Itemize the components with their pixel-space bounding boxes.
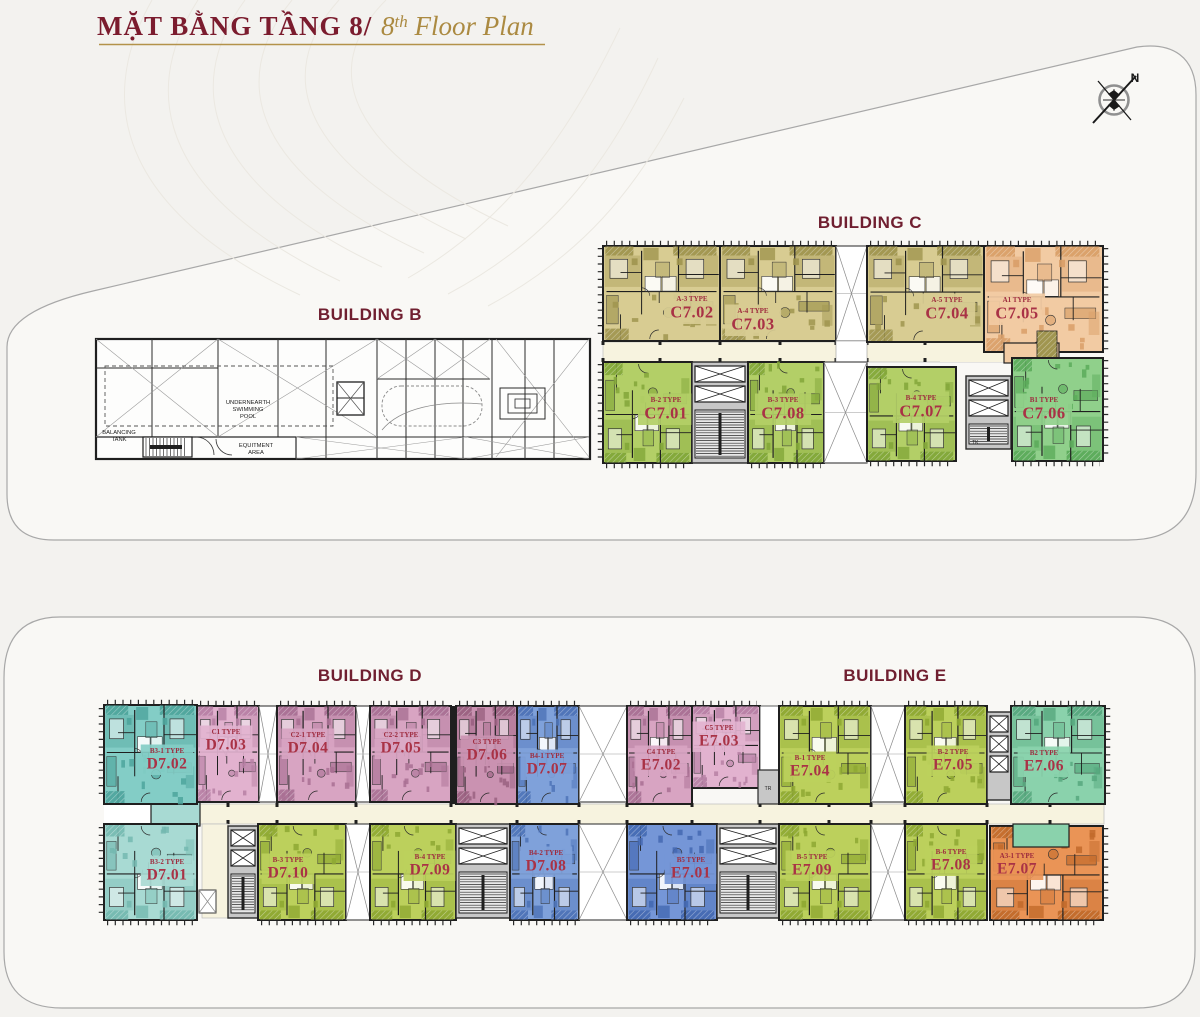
svg-text:MẶT BẰNG TẦNG 8/: MẶT BẰNG TẦNG 8/ bbox=[97, 10, 372, 41]
svg-text:D7.04: D7.04 bbox=[288, 740, 329, 757]
svg-text:E7.07: E7.07 bbox=[997, 861, 1037, 878]
svg-text:C7.08: C7.08 bbox=[761, 404, 804, 423]
svg-text:TR: TR bbox=[765, 786, 772, 792]
svg-text:C1 TYPE: C1 TYPE bbox=[212, 728, 241, 736]
svg-text:B5 TYPE: B5 TYPE bbox=[677, 856, 706, 864]
svg-text:C7.06: C7.06 bbox=[1022, 404, 1065, 423]
svg-text:D7.01: D7.01 bbox=[147, 867, 188, 884]
svg-text:UNDERNEARTH: UNDERNEARTH bbox=[226, 400, 270, 406]
svg-text:C7.03: C7.03 bbox=[731, 315, 774, 334]
svg-text:TANK: TANK bbox=[111, 437, 126, 443]
svg-text:BALANCING: BALANCING bbox=[102, 430, 136, 436]
svg-text:D7.03: D7.03 bbox=[206, 737, 247, 754]
svg-text:B3-1 TYPE: B3-1 TYPE bbox=[150, 747, 185, 755]
svg-text:B2 TYPE: B2 TYPE bbox=[1030, 749, 1059, 757]
svg-text:C7.01: C7.01 bbox=[644, 404, 687, 423]
svg-text:D7.09: D7.09 bbox=[410, 862, 451, 879]
svg-text:E7.06: E7.06 bbox=[1024, 758, 1064, 775]
svg-text:E7.08: E7.08 bbox=[931, 857, 971, 874]
svg-text:EQUITMENT: EQUITMENT bbox=[239, 443, 274, 449]
svg-text:C5 TYPE: C5 TYPE bbox=[705, 724, 734, 732]
svg-text:SWIMMING: SWIMMING bbox=[233, 407, 264, 413]
svg-text:B-1 TYPE: B-1 TYPE bbox=[795, 754, 826, 762]
svg-text:C3 TYPE: C3 TYPE bbox=[473, 738, 502, 746]
svg-text:E7.04: E7.04 bbox=[790, 763, 830, 780]
svg-text:TK.: TK. bbox=[972, 440, 980, 446]
svg-text:BUILDING E: BUILDING E bbox=[843, 666, 946, 685]
svg-text:A3-1 TYPE: A3-1 TYPE bbox=[1000, 852, 1035, 860]
svg-text:D7.08: D7.08 bbox=[526, 858, 567, 875]
svg-text:D7.02: D7.02 bbox=[147, 756, 188, 773]
svg-text:B3-2 TYPE: B3-2 TYPE bbox=[150, 858, 185, 866]
svg-text:D7.07: D7.07 bbox=[527, 761, 568, 778]
svg-text:E7.01: E7.01 bbox=[671, 865, 711, 882]
svg-text:C7.02: C7.02 bbox=[670, 303, 713, 322]
svg-text:AREA: AREA bbox=[248, 450, 264, 456]
svg-text:C7.05: C7.05 bbox=[995, 304, 1038, 323]
svg-text:C7.04: C7.04 bbox=[925, 304, 968, 323]
svg-text:C2-2 TYPE: C2-2 TYPE bbox=[384, 731, 419, 739]
svg-text:N: N bbox=[1131, 71, 1140, 85]
svg-text:BUILDING B: BUILDING B bbox=[318, 305, 422, 324]
svg-text:B4-1 TYPE: B4-1 TYPE bbox=[530, 752, 565, 760]
svg-text:B-5 TYPE: B-5 TYPE bbox=[797, 853, 828, 861]
svg-text:POOL: POOL bbox=[240, 414, 257, 420]
svg-text:B-4 TYPE: B-4 TYPE bbox=[415, 853, 446, 861]
svg-text:E7.03: E7.03 bbox=[699, 733, 739, 750]
svg-text:BUILDING D: BUILDING D bbox=[318, 666, 422, 685]
svg-text:D7.05: D7.05 bbox=[381, 740, 422, 757]
svg-text:B4-2 TYPE: B4-2 TYPE bbox=[529, 849, 564, 857]
svg-text:E7.09: E7.09 bbox=[792, 862, 832, 879]
svg-text:B-6 TYPE: B-6 TYPE bbox=[936, 848, 967, 856]
svg-text:B-3 TYPE: B-3 TYPE bbox=[273, 856, 304, 864]
svg-text:C4 TYPE: C4 TYPE bbox=[647, 748, 676, 756]
svg-text:D7.10: D7.10 bbox=[268, 865, 309, 882]
svg-text:E7.05: E7.05 bbox=[933, 757, 973, 774]
svg-text:C2-1 TYPE: C2-1 TYPE bbox=[291, 731, 326, 739]
svg-text:BUILDING C: BUILDING C bbox=[818, 213, 922, 232]
svg-text:C7.07: C7.07 bbox=[899, 402, 942, 421]
svg-text:D7.06: D7.06 bbox=[467, 747, 508, 764]
svg-text:B-2 TYPE: B-2 TYPE bbox=[938, 748, 969, 756]
svg-text:E7.02: E7.02 bbox=[641, 757, 681, 774]
